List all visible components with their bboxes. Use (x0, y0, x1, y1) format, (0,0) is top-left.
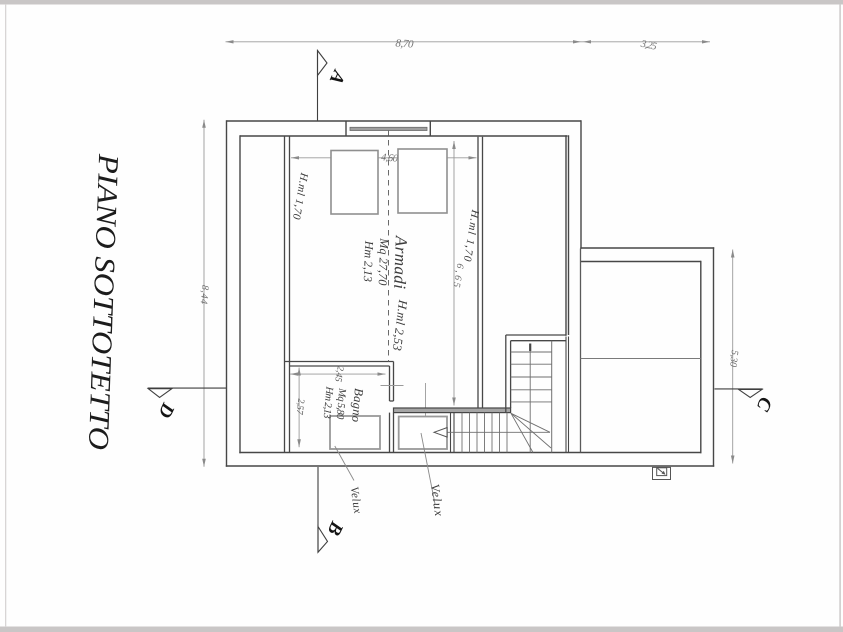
svg-text:5,30: 5,30 (727, 349, 740, 367)
svg-text:4,60: 4,60 (381, 152, 400, 165)
svg-text:Armadi: Armadi (390, 235, 411, 290)
svg-text:Hm 2,13: Hm 2,13 (361, 240, 376, 282)
svg-text:8,44: 8,44 (198, 285, 211, 305)
svg-text:8,70: 8,70 (395, 37, 414, 50)
svg-text:2,57: 2,57 (293, 398, 305, 416)
svg-text:Mq 27,70: Mq 27,70 (376, 237, 392, 285)
svg-text:Bagno: Bagno (349, 388, 366, 423)
